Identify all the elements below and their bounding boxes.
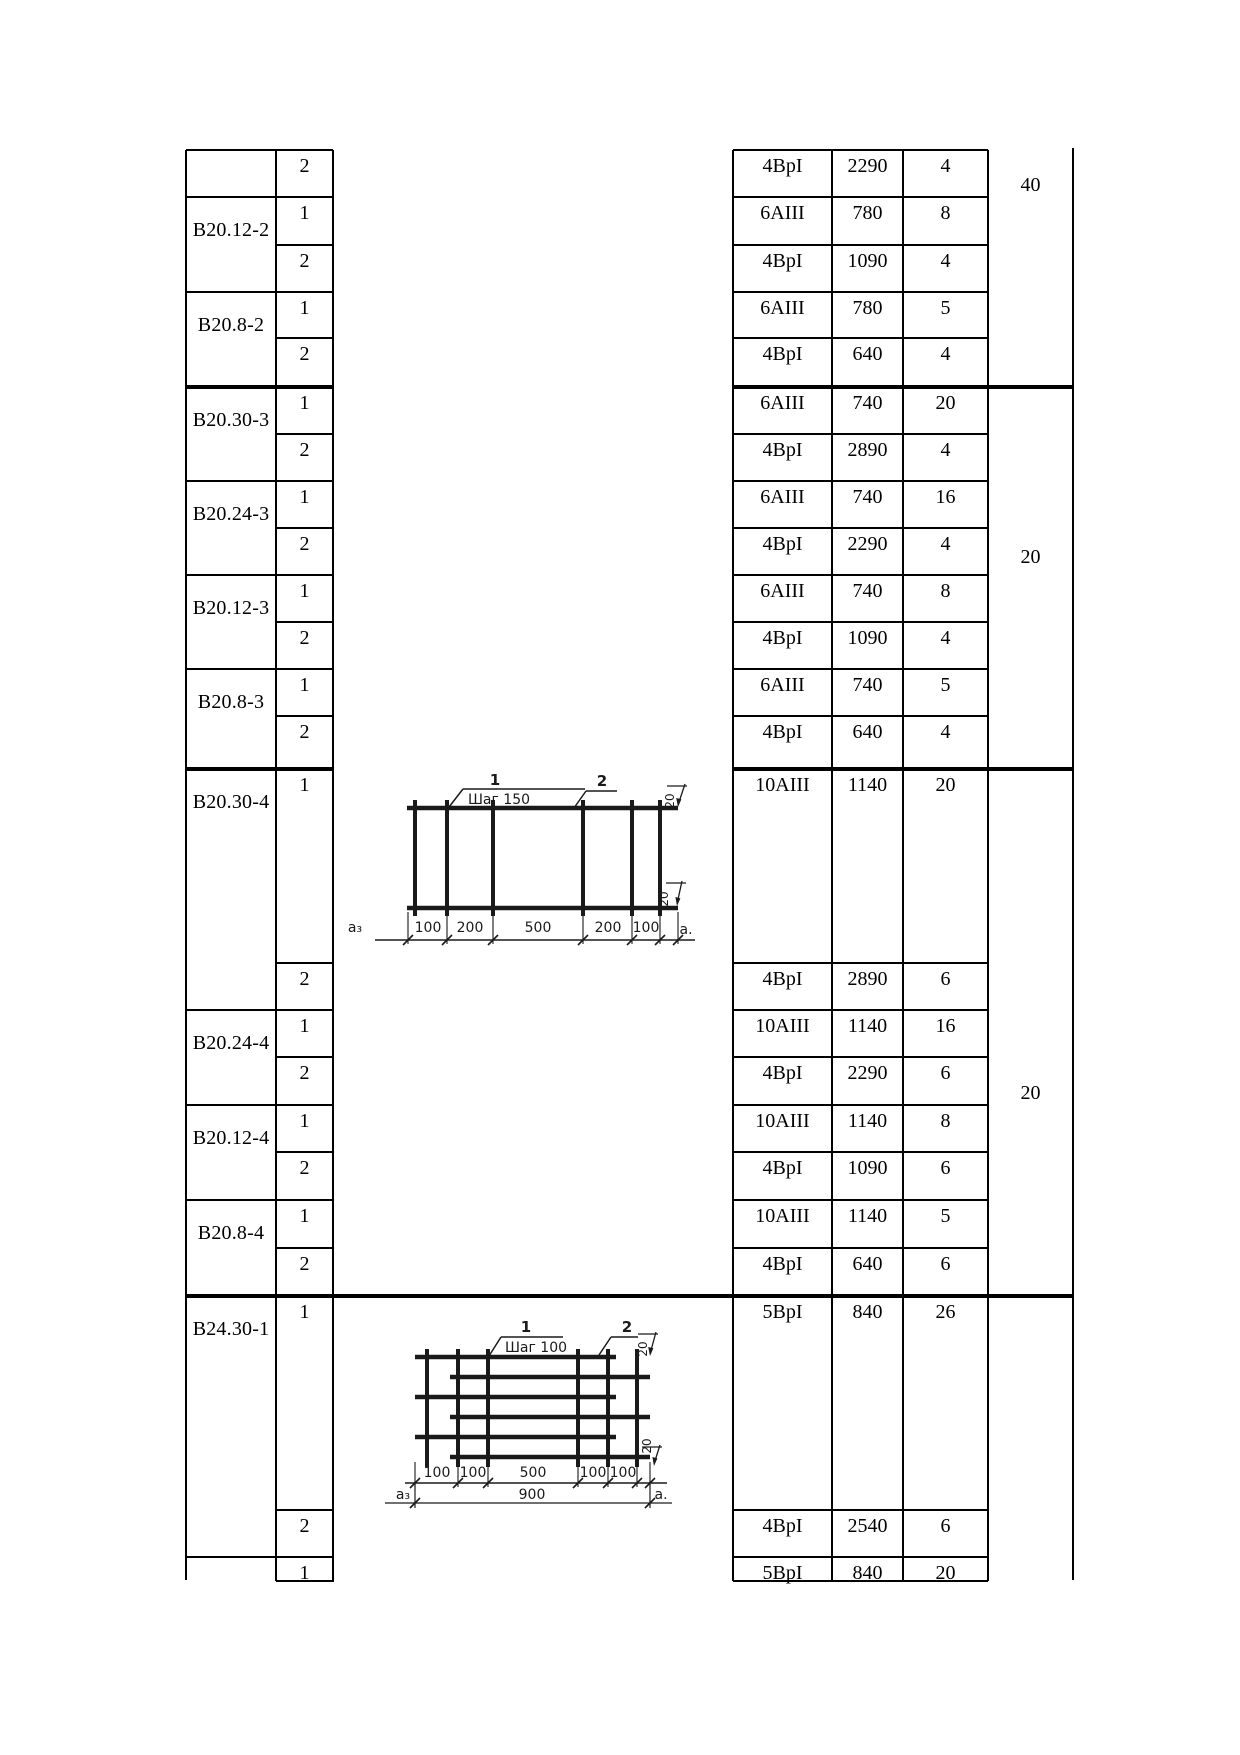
overhang-dim: 20 xyxy=(640,1438,654,1453)
bar-length: 640 xyxy=(832,1252,903,1276)
grid-line-h xyxy=(733,1056,988,1058)
callout-number: 1 xyxy=(490,771,500,789)
bar-length: 640 xyxy=(832,720,903,744)
dim-value: 100 xyxy=(415,920,442,936)
pos-number: 2 xyxy=(276,1514,333,1538)
arrowhead xyxy=(675,897,680,906)
grid-line-h xyxy=(276,962,333,964)
callout-2-leader xyxy=(599,1337,638,1355)
pos-number: 1 xyxy=(276,1109,333,1133)
grid-line-h xyxy=(733,196,988,198)
pos-number: 1 xyxy=(276,1561,333,1585)
page-right-rule xyxy=(1072,148,1074,1580)
bar-length: 2890 xyxy=(832,438,903,462)
bar-length: 640 xyxy=(832,342,903,366)
grid-line-h xyxy=(733,767,988,770)
specification-sheet-page: 1 Шаг 150 2 20 20 100 200 500 200 100 a₃… xyxy=(0,0,1240,1755)
bar-length: 740 xyxy=(832,579,903,603)
mark-label: B20.30-3 xyxy=(187,408,275,432)
bar-length: 1090 xyxy=(832,626,903,650)
grid-line-h xyxy=(186,149,333,151)
bar-length: 1140 xyxy=(832,773,903,797)
series-separator xyxy=(988,1294,1073,1297)
rebar-spec: 6AIII xyxy=(733,201,832,225)
dim-value: 500 xyxy=(525,920,552,936)
pos-number: 2 xyxy=(276,1156,333,1180)
bar-qty: 4 xyxy=(903,626,988,650)
grid-line-h xyxy=(276,244,333,246)
grid-line-h xyxy=(186,1556,333,1558)
grid-line-v xyxy=(185,150,187,1580)
grid-line-h xyxy=(276,1509,333,1511)
grid-line-h xyxy=(276,337,333,339)
grid-line-h xyxy=(733,291,988,293)
grid-line-h xyxy=(186,1294,333,1297)
rebar-spec: 4BpI xyxy=(733,154,832,178)
bar-length: 2290 xyxy=(832,532,903,556)
mesh-vertical-bars xyxy=(427,1349,637,1467)
bar-qty: 8 xyxy=(903,201,988,225)
mark-label: B20.12-4 xyxy=(187,1126,275,1150)
pos-number: 1 xyxy=(276,1300,333,1324)
mark-label: B20.24-4 xyxy=(187,1031,275,1055)
bar-length: 1090 xyxy=(832,249,903,273)
mesh-vertical-bars xyxy=(415,800,660,916)
bar-qty: 16 xyxy=(903,1014,988,1038)
mark-label: B20.8-3 xyxy=(187,690,275,714)
pos-number: 1 xyxy=(276,485,333,509)
pos-number: 2 xyxy=(276,154,333,178)
bar-length: 740 xyxy=(832,485,903,509)
bar-length: 2890 xyxy=(832,967,903,991)
rebar-spec: 5BpI xyxy=(733,1300,832,1324)
pos-number: 2 xyxy=(276,967,333,991)
grid-line-h xyxy=(733,527,988,529)
series-qty: 40 xyxy=(988,173,1073,197)
bar-qty: 8 xyxy=(903,579,988,603)
grid-line-h xyxy=(186,1104,333,1106)
rebar-spec: 6AIII xyxy=(733,579,832,603)
bar-qty: 20 xyxy=(903,773,988,797)
grid-line-h xyxy=(733,1151,988,1153)
dim-value: 200 xyxy=(457,920,484,936)
bar-length: 2540 xyxy=(832,1514,903,1538)
bar-qty: 5 xyxy=(903,1204,988,1228)
rebar-spec: 4BpI xyxy=(733,1156,832,1180)
pos-number: 1 xyxy=(276,391,333,415)
grid-line-h xyxy=(733,715,988,717)
series-separator xyxy=(988,767,1073,770)
grid-line-h xyxy=(733,1104,988,1106)
rebar-spec: 10AIII xyxy=(733,773,832,797)
bar-length: 1140 xyxy=(832,1109,903,1133)
anchor-label: a. xyxy=(679,922,692,938)
pos-number: 1 xyxy=(276,673,333,697)
rebar-spec: 10AIII xyxy=(733,1204,832,1228)
bar-length: 1140 xyxy=(832,1014,903,1038)
grid-line-h xyxy=(733,621,988,623)
pos-number: 2 xyxy=(276,249,333,273)
callout-number: 2 xyxy=(622,1318,632,1336)
grid-line-h xyxy=(733,149,988,151)
grid-line-h xyxy=(733,480,988,482)
grid-line-h xyxy=(333,1294,733,1297)
pos-number: 1 xyxy=(276,1014,333,1038)
dim-value: 100 xyxy=(460,1465,487,1481)
mark-label: B20.12-2 xyxy=(187,218,275,242)
pos-number: 2 xyxy=(276,1252,333,1276)
pos-number: 2 xyxy=(276,720,333,744)
grid-line-h xyxy=(276,715,333,717)
pitch-label: Шаг 150 xyxy=(468,792,530,808)
grid-line-h xyxy=(276,527,333,529)
grid-line-h xyxy=(276,1056,333,1058)
grid-line-h xyxy=(276,433,333,435)
grid-line-h xyxy=(186,480,333,482)
mark-label: B20.24-3 xyxy=(187,502,275,526)
series-separator xyxy=(988,385,1073,388)
series-qty: 20 xyxy=(988,545,1073,569)
series-qty: 20 xyxy=(988,1081,1073,1105)
grid-line-h xyxy=(186,1009,333,1011)
reinforcement-mesh-diagram-2: 1 Шаг 100 2 20 20 100 100 500 100 100 90… xyxy=(335,1300,715,1515)
grid-line-h xyxy=(733,433,988,435)
overhang-dim: 20 xyxy=(636,1341,650,1356)
dim-value: 100 xyxy=(633,920,660,936)
bar-length: 740 xyxy=(832,391,903,415)
bar-qty: 6 xyxy=(903,1514,988,1538)
grid-line-h xyxy=(733,668,988,670)
rebar-spec: 4BpI xyxy=(733,532,832,556)
callout-number: 2 xyxy=(597,772,607,790)
bar-length: 1090 xyxy=(832,1156,903,1180)
rebar-spec: 6AIII xyxy=(733,391,832,415)
mesh-horizontal-bars xyxy=(415,1357,650,1457)
anchor-label: a₃ xyxy=(396,1487,410,1503)
bar-qty: 4 xyxy=(903,438,988,462)
dim-value: 100 xyxy=(424,1465,451,1481)
pos-number: 1 xyxy=(276,579,333,603)
rebar-spec: 4BpI xyxy=(733,1514,832,1538)
arrowhead xyxy=(652,1457,657,1466)
mark-label: B24.30-1 xyxy=(187,1317,275,1341)
pos-number: 2 xyxy=(276,626,333,650)
rebar-spec: 10AIII xyxy=(733,1014,832,1038)
bar-length: 780 xyxy=(832,201,903,225)
rebar-spec: 4BpI xyxy=(733,626,832,650)
grid-line-h xyxy=(276,1247,333,1249)
grid-line-h xyxy=(733,385,988,388)
anchor-label: a. xyxy=(654,1487,667,1503)
rebar-spec: 4BpI xyxy=(733,438,832,462)
grid-line-h xyxy=(186,291,333,293)
bar-length: 1140 xyxy=(832,1204,903,1228)
grid-line-h xyxy=(186,196,333,198)
bar-qty: 6 xyxy=(903,1252,988,1276)
dim-value: 200 xyxy=(595,920,622,936)
grid-line-h xyxy=(733,574,988,576)
rebar-spec: 10AIII xyxy=(733,1109,832,1133)
grid-line-h xyxy=(733,1009,988,1011)
dim-value: 100 xyxy=(610,1465,637,1481)
mark-label: B20.12-3 xyxy=(187,596,275,620)
pos-number: 1 xyxy=(276,773,333,797)
bar-length: 780 xyxy=(832,296,903,320)
grid-line-h xyxy=(733,1199,988,1201)
pitch-label: Шаг 100 xyxy=(505,1340,567,1356)
rebar-spec: 6AIII xyxy=(733,296,832,320)
bar-length: 2290 xyxy=(832,154,903,178)
callout-2-leader xyxy=(574,791,617,808)
bar-qty: 4 xyxy=(903,532,988,556)
dim-value: 100 xyxy=(580,1465,607,1481)
rebar-spec: 6AIII xyxy=(733,485,832,509)
pos-number: 2 xyxy=(276,438,333,462)
grid-line-h xyxy=(186,385,333,388)
bar-qty: 20 xyxy=(903,391,988,415)
bar-qty: 4 xyxy=(903,720,988,744)
grid-line-h xyxy=(186,574,333,576)
grid-line-h xyxy=(186,1199,333,1201)
anchor-label: a₃ xyxy=(348,920,362,936)
bar-qty: 5 xyxy=(903,673,988,697)
pos-number: 2 xyxy=(276,532,333,556)
mark-label: B20.8-2 xyxy=(187,313,275,337)
grid-line-h xyxy=(276,1151,333,1153)
grid-line-h xyxy=(733,1509,988,1511)
bar-qty: 20 xyxy=(903,1561,988,1585)
pos-number: 2 xyxy=(276,342,333,366)
grid-line-h xyxy=(733,1247,988,1249)
grid-line-h xyxy=(733,244,988,246)
grid-line-h xyxy=(733,337,988,339)
bar-qty: 5 xyxy=(903,296,988,320)
pos-number: 1 xyxy=(276,296,333,320)
bar-qty: 8 xyxy=(903,1109,988,1133)
bar-qty: 26 xyxy=(903,1300,988,1324)
rebar-spec: 4BpI xyxy=(733,249,832,273)
bar-qty: 4 xyxy=(903,249,988,273)
pos-number: 1 xyxy=(276,201,333,225)
bar-length: 740 xyxy=(832,673,903,697)
rebar-spec: 4BpI xyxy=(733,342,832,366)
grid-line-h xyxy=(186,767,333,770)
grid-line-h xyxy=(733,1294,988,1297)
overhang-dim: 20 xyxy=(657,891,671,906)
bar-qty: 4 xyxy=(903,342,988,366)
bar-qty: 6 xyxy=(903,967,988,991)
rebar-spec: 4BpI xyxy=(733,1252,832,1276)
total-dim-value: 900 xyxy=(519,1487,546,1503)
bar-length: 2290 xyxy=(832,1061,903,1085)
rebar-spec: 6AIII xyxy=(733,673,832,697)
callout-number: 1 xyxy=(521,1318,531,1336)
grid-line-h xyxy=(186,668,333,670)
pos-number: 2 xyxy=(276,1061,333,1085)
grid-line-h xyxy=(276,621,333,623)
rebar-spec: 5BpI xyxy=(733,1561,832,1585)
bar-qty: 6 xyxy=(903,1156,988,1180)
mark-label: B20.8-4 xyxy=(187,1221,275,1245)
grid-line-h xyxy=(733,962,988,964)
dim-value: 500 xyxy=(520,1465,547,1481)
reinforcement-mesh-diagram-1: 1 Шаг 150 2 20 20 100 200 500 200 100 a₃… xyxy=(335,755,715,955)
rebar-spec: 4BpI xyxy=(733,720,832,744)
pos-number: 1 xyxy=(276,1204,333,1228)
mark-label: B20.30-4 xyxy=(187,790,275,814)
grid-line-h xyxy=(733,1556,988,1558)
rebar-spec: 4BpI xyxy=(733,1061,832,1085)
bar-qty: 6 xyxy=(903,1061,988,1085)
bar-qty: 4 xyxy=(903,154,988,178)
overhang-dim: 20 xyxy=(663,793,677,808)
bar-qty: 16 xyxy=(903,485,988,509)
rebar-spec: 4BpI xyxy=(733,967,832,991)
bar-length: 840 xyxy=(832,1300,903,1324)
bar-length: 840 xyxy=(832,1561,903,1585)
